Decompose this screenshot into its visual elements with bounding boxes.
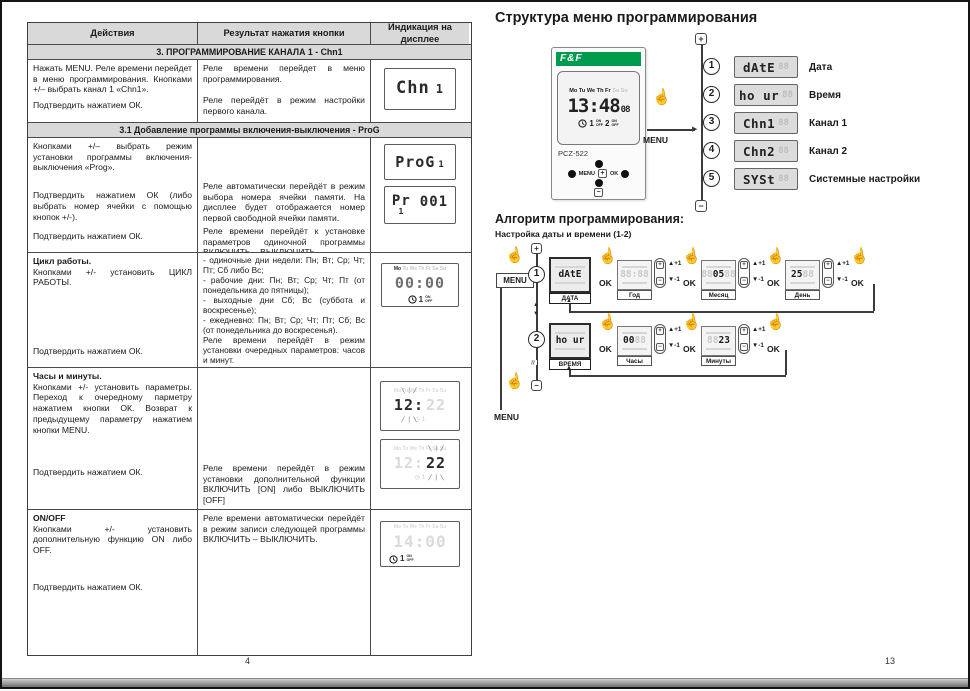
arrow-down-icon: ▼	[533, 311, 539, 317]
flow-display-date: dAtE	[549, 257, 591, 293]
flow-step-label: Минуты	[701, 356, 736, 366]
minus-icon: −	[531, 380, 542, 391]
action-text: Кнопками +/- установить дополнительную ф…	[33, 524, 192, 556]
ok-label: OK	[683, 278, 696, 288]
result-text: Реле перейдёт в режим настройки первого …	[203, 95, 365, 116]
menu-item-label: Время	[809, 90, 841, 101]
menu-item-display: SYSt88	[734, 168, 798, 190]
menu-item-display: dAtE88	[734, 56, 798, 78]
col-header-display: Индикация на дисплее	[371, 23, 469, 44]
plus-minus-control: +− ▲+1▼-1	[738, 258, 768, 288]
confirm-text: Подтвердить нажатием ОК.	[33, 231, 192, 242]
minus-button-dot	[595, 179, 603, 187]
table-row-prog: Кнопками +/– выбрать режим установки про…	[28, 138, 471, 253]
action-text: Кнопками +/- установить ЦИКЛ РАБОТЫ.	[33, 267, 192, 288]
ok-label: OK	[599, 344, 612, 354]
ok-button-label: OK	[610, 171, 618, 177]
algorithm-subtitle: Настройка даты и времени (1-2)	[495, 229, 631, 239]
ok-label: OK	[767, 278, 780, 288]
result-text: Реле времени автоматически перейдёт в ре…	[203, 513, 365, 545]
flow-return-line	[569, 375, 786, 377]
menu-item-number: 1	[703, 58, 720, 75]
left-page-number: 4	[245, 656, 250, 666]
press-hand-icon: ☝	[597, 246, 619, 267]
flow-step-label: Месяц	[701, 290, 736, 300]
flow-step-label: Год	[617, 290, 652, 300]
menu-item-number: 3	[703, 114, 720, 131]
right-page-number: 13	[885, 656, 895, 666]
flow-step-number: 2	[528, 331, 545, 348]
arrow-right-icon: ▶	[692, 126, 697, 133]
flow-step-display: 880588	[701, 260, 736, 290]
scanned-manual-spread: Действия Результат нажатия кнопки Индика…	[0, 0, 970, 689]
row-title: ON/OFF	[33, 513, 192, 524]
table-row-onoff: ON/OFF Кнопками +/- установить дополните…	[28, 510, 471, 655]
menu-item-label: Канал 2	[809, 146, 847, 157]
result-text: Реле времени перейдёт в режим установки …	[203, 463, 365, 506]
lcd-prog: ProG 1	[384, 144, 456, 180]
lcd-chn1: Chn 1	[384, 68, 456, 110]
flow-step-number: 1	[528, 266, 545, 283]
result-text: Реле времени перейдёт в режим установки …	[203, 336, 365, 366]
plus-button-dot	[595, 160, 603, 168]
table-row-cycle: Цикл работы. Кнопками +/- установить ЦИК…	[28, 253, 471, 368]
result-text: Реле времени перейдет в меню программиро…	[203, 63, 365, 84]
result-line: - одиночные дни недели: Пн; Вт; Ср; Чт; …	[203, 256, 365, 276]
flow-return-line	[569, 303, 571, 311]
section-3-header: 3. ПРОГРАММИРОВАНИЕ КАНАЛА 1 - Chn1	[28, 45, 471, 60]
plus-minus-control: +− ▲+1▼-1	[654, 324, 684, 354]
action-text: Кнопками +/– выбрать режим установки про…	[33, 141, 192, 173]
result-line: - выходные дни Сб; Вс (суббота и воскрес…	[203, 296, 365, 316]
menu-button-label: MENU	[579, 171, 595, 177]
result-text: Реле автоматически перейдёт в режим выбо…	[203, 181, 365, 224]
flow-step-display: 8823	[701, 326, 736, 356]
flow-return-line	[785, 350, 787, 375]
press-hand-icon: ☝	[651, 87, 673, 108]
plus-icon: +	[656, 261, 664, 269]
flow-step-label: Часы	[617, 356, 652, 366]
menu-item-label: Дата	[809, 62, 832, 73]
flow-menu-label: MENU	[494, 412, 519, 422]
result-text: Реле времени перейдёт к установке параме…	[203, 226, 365, 252]
arrow-up-icon: ▲	[566, 365, 572, 371]
right-page: Структура меню программирования F&F Mo T…	[489, 2, 970, 691]
flow-step-display: 88:88	[617, 260, 652, 290]
lcd-minutes-blinking: Mo Tu We Th Fr Sa Su 12: 22 ◷ 1	[380, 439, 460, 489]
plus-minus-control: +− ▲+1▼-1	[738, 324, 768, 354]
minus-icon: −	[594, 188, 603, 197]
minus-icon: −	[656, 277, 664, 285]
menu-item-number: 2	[703, 86, 720, 103]
menu-press-label: MENU	[643, 135, 668, 145]
clock-icon	[408, 295, 417, 304]
device-display: Mo Tu We Th Fr Sa Su 13:4808 1 ONOFF 2 O…	[557, 71, 640, 145]
device-buttons: MENU + OK −	[552, 160, 645, 197]
action-text: Кнопками +/- установить параметры. Перех…	[33, 382, 192, 436]
algorithm-title: Алгоритм программирования:	[495, 212, 684, 226]
menu-structure-title: Структура меню программирования	[495, 10, 757, 26]
flow-step-display: 0088	[617, 326, 652, 356]
press-hand-icon: ☝	[504, 245, 526, 266]
menu-item-number: 5	[703, 170, 720, 187]
lcd-pr-001: Pr 1 001	[384, 186, 456, 224]
ok-button-dot	[621, 170, 629, 178]
arrow-up-icon: ▲	[566, 298, 572, 304]
confirm-text: Подтвердить нажатием ОК.	[33, 467, 192, 478]
arrow-up-icon: ▲	[533, 302, 539, 308]
press-hand-icon: ☝	[597, 312, 619, 333]
action-text: Нажать MENU. Реле времени перейдет в мен…	[33, 63, 192, 95]
ff-logo: F&F	[556, 52, 641, 66]
table-row-hours-minutes: Часы и минуты. Кнопками +/- установить п…	[28, 368, 471, 510]
scan-edge	[2, 678, 968, 687]
menu-item-display: ho ur88	[734, 84, 798, 106]
flow-return-line	[873, 284, 875, 311]
clock-icon	[578, 119, 587, 128]
row-title: Цикл работы.	[33, 256, 192, 267]
plus-icon: +	[531, 243, 542, 254]
col-header-result: Результат нажатия кнопки	[198, 23, 371, 44]
row-title: Часы и минуты.	[33, 371, 192, 382]
menu-arrow-line	[647, 129, 695, 131]
plus-minus-control: +− ▲+1▼-1	[822, 258, 852, 288]
ok-label: OK	[599, 278, 612, 288]
lcd-hours-blinking: Mo Tu We Th Fr Sa Su 12: 22 ◷ 1	[380, 381, 460, 431]
pcz-522-device: F&F Mo Tu We Th Fr Sa Su 13:4808 1 ONOFF…	[551, 47, 646, 200]
programming-table: Действия Результат нажатия кнопки Индика…	[27, 22, 472, 656]
flow-display-time: ho ur	[549, 323, 591, 359]
result-line: - рабочие дни: Пн; Вт; Ср; Чт; Пт (от по…	[203, 276, 365, 296]
device-model-label: PCZ-522	[558, 149, 588, 158]
lcd-next-program: Mo Tu We Th Fr Sa Su 14:00 1 ONOFF	[380, 521, 460, 567]
menu-item-number: 4	[703, 142, 720, 159]
plus-minus-control: +− ▲+1▼-1	[654, 258, 684, 288]
lcd-cycle: Mo Tu We Th Fr Sa Su 00:00 1 ONOFF	[381, 263, 459, 307]
flow-left-line	[500, 288, 502, 410]
confirm-text: Подтвердить нажатием ОК.	[33, 346, 192, 357]
menu-item-label: Системные настройки	[809, 174, 920, 185]
confirm-text: Подтвердить нажатием ОК (либо выбрать но…	[33, 190, 192, 222]
plus-icon: +	[598, 169, 607, 178]
section-3-1-header: 3.1 Добавление программы включения-выклю…	[28, 123, 471, 138]
confirm-text: Подтвердить нажатием ОК.	[33, 582, 192, 593]
menu-button-dot	[568, 170, 576, 178]
flow-step-label: День	[785, 290, 820, 300]
menu-item-display: Chn288	[734, 140, 798, 162]
menu-item-label: Канал 1	[809, 118, 847, 129]
confirm-text: Подтвердить нажатием ОК.	[33, 100, 192, 111]
ok-label: OK	[767, 344, 780, 354]
ok-label: OK	[851, 278, 864, 288]
table-header-row: Действия Результат нажатия кнопки Индика…	[28, 23, 471, 45]
flow-step-display: 2588	[785, 260, 820, 290]
minus-icon: −	[695, 200, 707, 212]
line-break-mark: ≈	[528, 360, 537, 365]
ok-label: OK	[683, 344, 696, 354]
result-line: - ежедневно: Пн; Вт; Ср; Чт; Пт; Сб; Вс …	[203, 316, 365, 336]
plus-icon: +	[695, 33, 707, 45]
menu-item-display: Chn188	[734, 112, 798, 134]
col-header-actions: Действия	[28, 23, 198, 44]
clock-icon	[389, 555, 398, 564]
press-hand-icon: ☝	[504, 371, 526, 392]
table-row-chn1: Нажать MENU. Реле времени перейдет в мен…	[28, 60, 471, 123]
